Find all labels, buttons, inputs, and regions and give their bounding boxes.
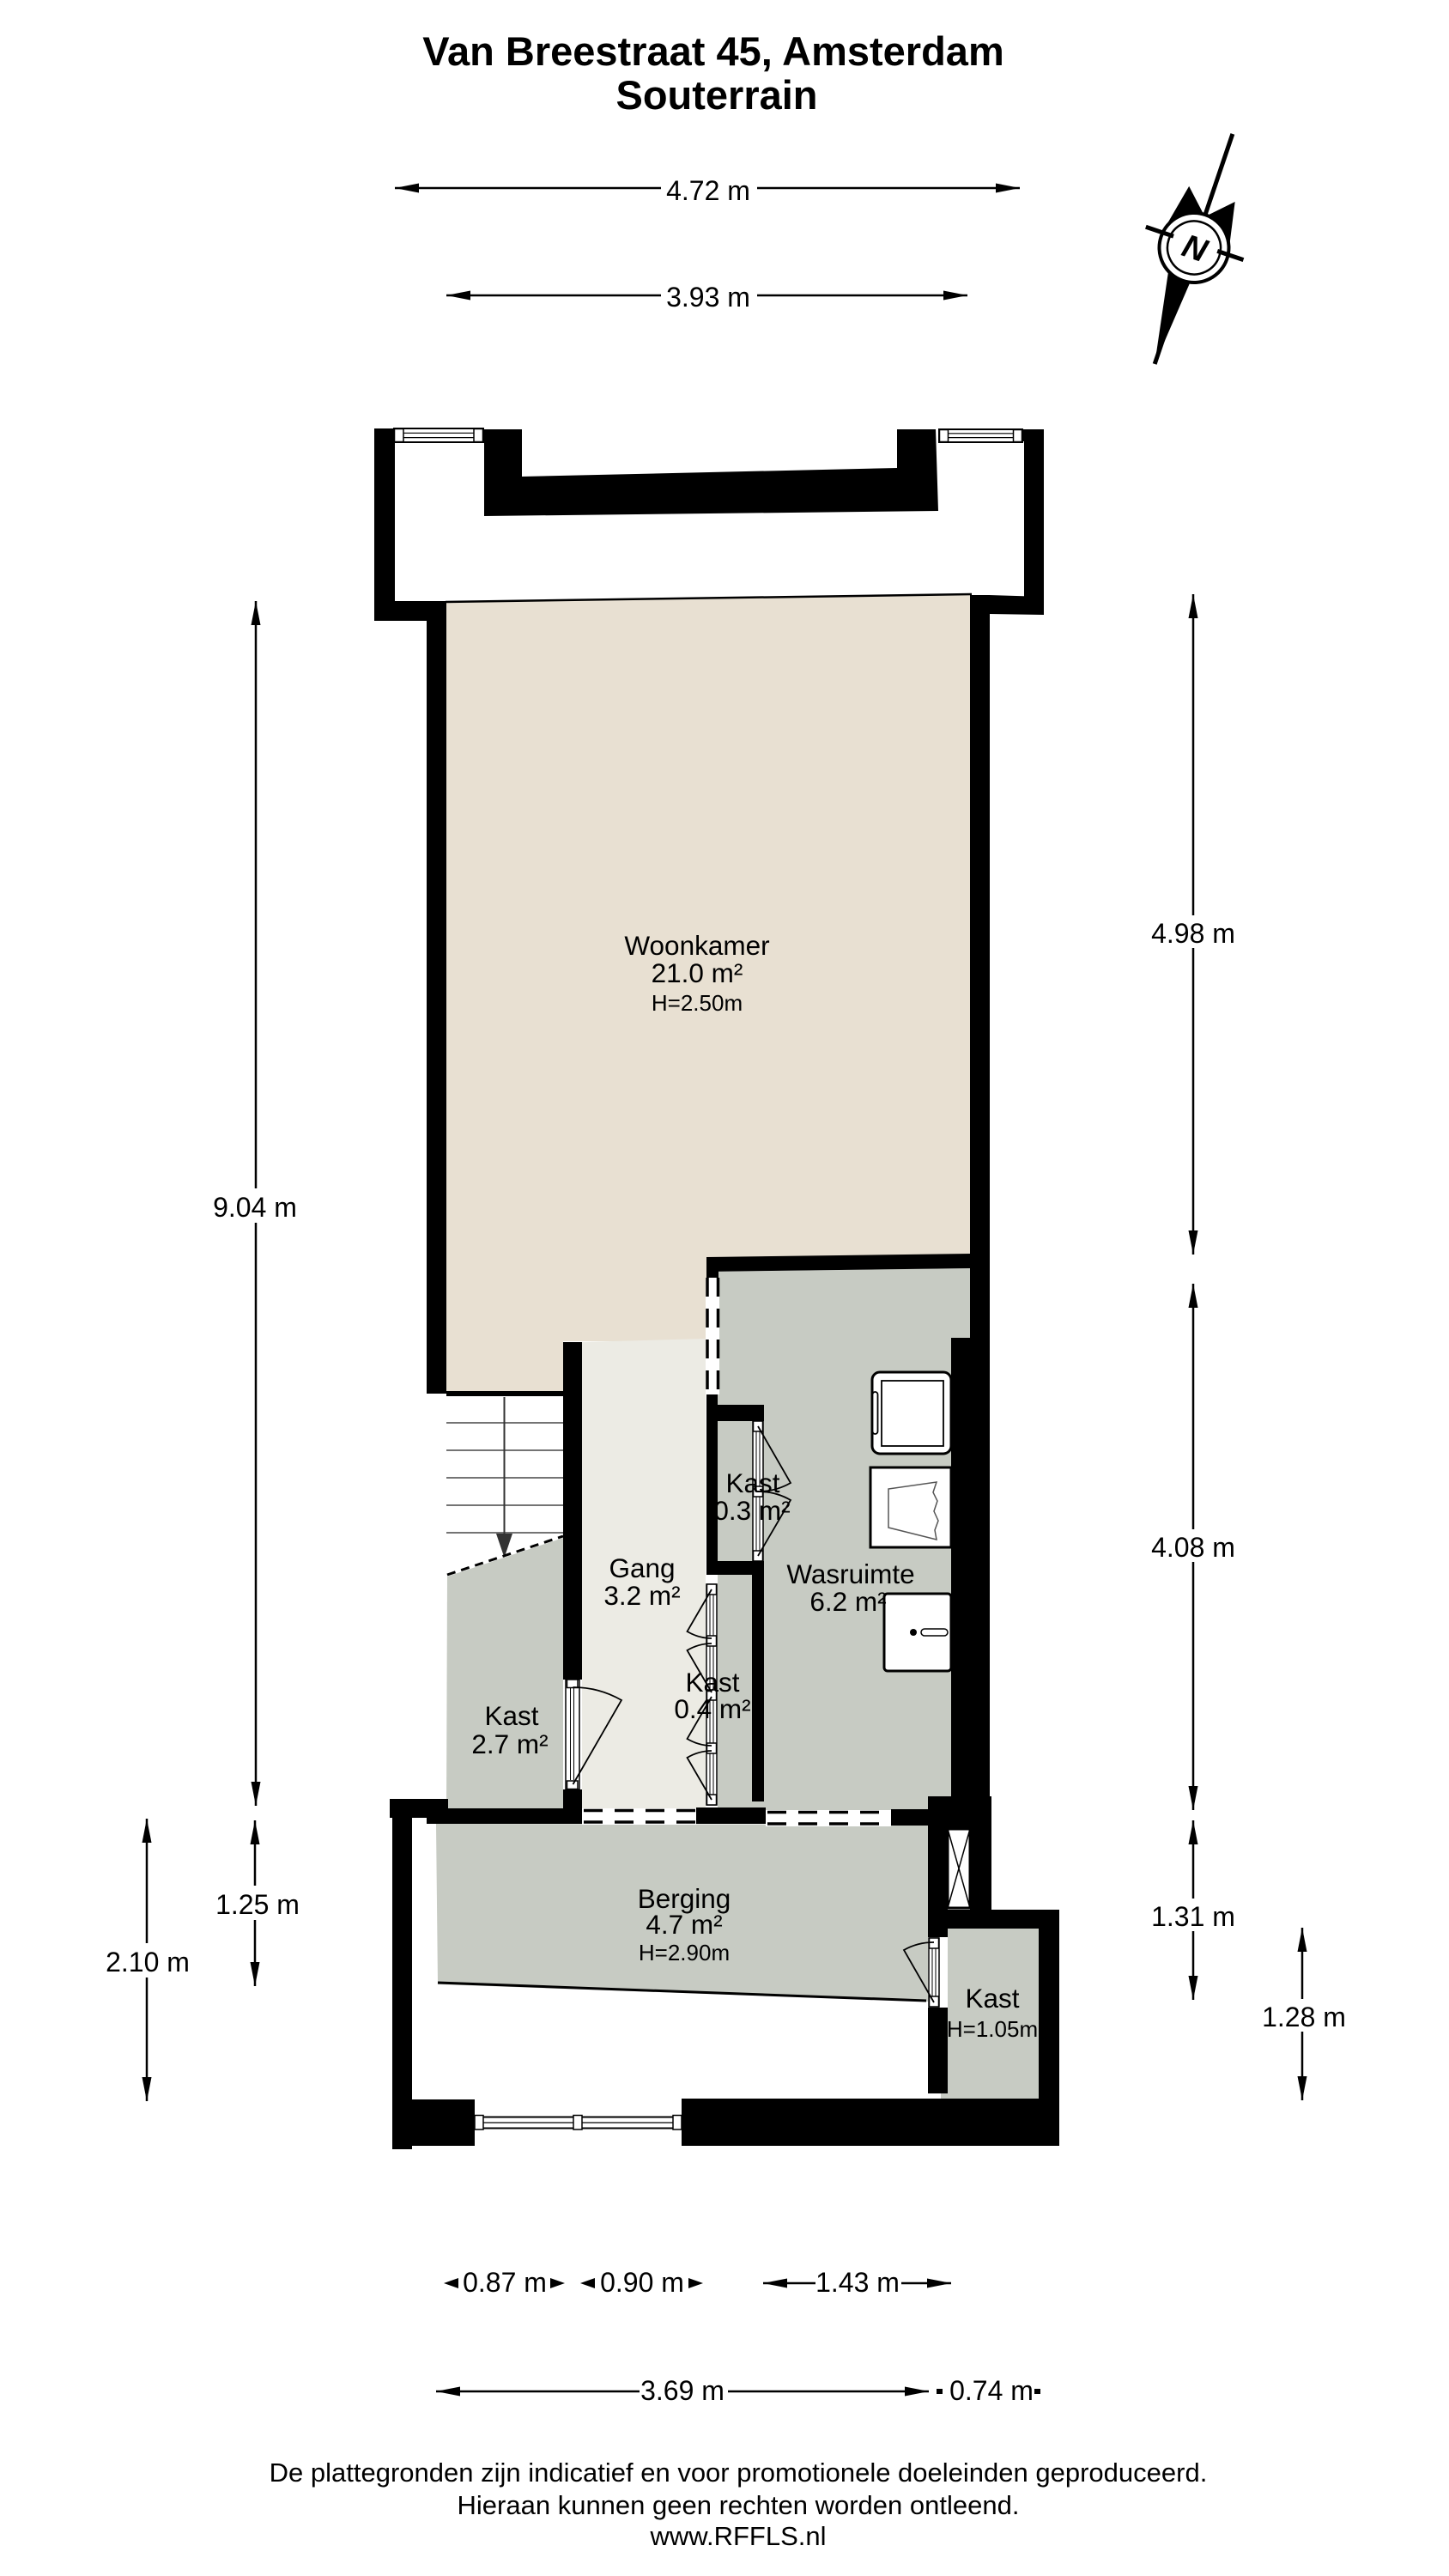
svg-text:Kast: Kast — [484, 1700, 538, 1731]
svg-text:2.10 m: 2.10 m — [106, 1947, 190, 1978]
svg-text:Woonkamer: Woonkamer — [624, 930, 769, 961]
svg-text:21.0 m²: 21.0 m² — [652, 957, 743, 988]
svg-text:www.RFFLS.nl: www.RFFLS.nl — [650, 2521, 827, 2551]
svg-text:9.04 m: 9.04 m — [213, 1192, 297, 1223]
svg-text:Souterrain: Souterrain — [615, 72, 817, 118]
svg-text:4.98 m: 4.98 m — [1151, 918, 1235, 949]
svg-text:H=2.50m: H=2.50m — [652, 990, 743, 1016]
svg-text:Kast: Kast — [725, 1467, 779, 1498]
svg-text:1.28 m: 1.28 m — [1262, 2002, 1346, 2032]
svg-text:Wasruimte: Wasruimte — [786, 1558, 914, 1589]
svg-text:Kast: Kast — [965, 1983, 1019, 2014]
svg-text:1.31 m: 1.31 m — [1151, 1901, 1235, 1932]
svg-text:0.87 m: 0.87 m — [463, 2267, 547, 2298]
svg-text:Hieraan kunnen geen rechten wo: Hieraan kunnen geen rechten worden ontle… — [458, 2490, 1020, 2520]
svg-text:6.2 m²: 6.2 m² — [809, 1586, 886, 1617]
svg-text:1.43 m: 1.43 m — [815, 2267, 900, 2298]
svg-text:0.4 m²: 0.4 m² — [674, 1693, 750, 1724]
svg-text:Van Breestraat 45, Amsterdam: Van Breestraat 45, Amsterdam — [422, 28, 1003, 74]
svg-text:2.7 m²: 2.7 m² — [471, 1728, 548, 1759]
svg-text:De plattegronden zijn indicati: De plattegronden zijn indicatief en voor… — [270, 2458, 1208, 2488]
svg-text:3.69 m: 3.69 m — [640, 2375, 724, 2406]
svg-text:0.3 m²: 0.3 m² — [713, 1495, 790, 1526]
svg-text:3.93 m: 3.93 m — [666, 282, 750, 313]
svg-text:4.7 m²: 4.7 m² — [646, 1909, 722, 1940]
svg-text:H=1.05m: H=1.05m — [947, 2016, 1038, 2042]
svg-text:0.74 m: 0.74 m — [949, 2375, 1034, 2406]
svg-text:4.08 m: 4.08 m — [1151, 1532, 1235, 1563]
svg-text:H=2.90m: H=2.90m — [639, 1940, 730, 1965]
svg-text:4.72 m: 4.72 m — [666, 175, 750, 206]
svg-text:1.25 m: 1.25 m — [215, 1889, 300, 1920]
svg-text:0.90 m: 0.90 m — [600, 2267, 684, 2298]
svg-text:Gang: Gang — [609, 1552, 675, 1583]
svg-text:3.2 m²: 3.2 m² — [603, 1580, 680, 1611]
